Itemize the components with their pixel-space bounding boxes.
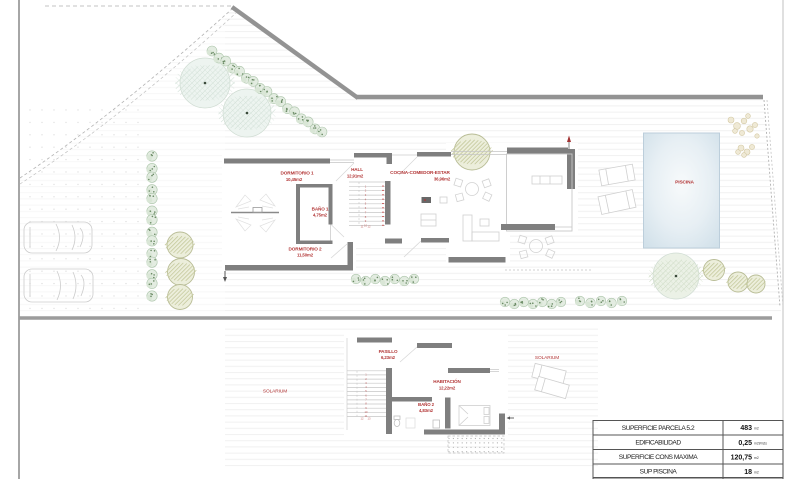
svg-text:m2t/m2s: m2t/m2s — [754, 442, 767, 446]
svg-text:11,50m2: 11,50m2 — [297, 253, 314, 258]
svg-text:m2: m2 — [754, 471, 759, 475]
svg-text:0,25: 0,25 — [738, 440, 752, 447]
svg-text:12: 12 — [368, 225, 371, 229]
svg-text:10,45m2: 10,45m2 — [286, 177, 303, 182]
svg-text:13: 13 — [368, 417, 371, 421]
svg-text:HALL: HALL — [351, 167, 363, 172]
svg-text:DORMITORIO 1: DORMITORIO 1 — [280, 171, 314, 176]
svg-text:HABITACIÓN: HABITACIÓN — [433, 377, 461, 384]
svg-text:SOLARIUM: SOLARIUM — [263, 389, 287, 395]
svg-text:12,91m2: 12,91m2 — [347, 174, 364, 179]
svg-text:PASILLO: PASILLO — [379, 349, 398, 354]
svg-text:COCINA-COMEDOR-ESTAR: COCINA-COMEDOR-ESTAR — [390, 170, 450, 175]
svg-text:SOLARIUM: SOLARIUM — [535, 355, 559, 361]
svg-text:10: 10 — [365, 410, 368, 414]
svg-text:12,22m2: 12,22m2 — [439, 386, 456, 391]
svg-text:BAÑO 1: BAÑO 1 — [312, 206, 329, 212]
svg-text:SUPERFICIE PARCELA 5.2: SUPERFICIE PARCELA 5.2 — [622, 425, 695, 432]
svg-text:BAÑO 2: BAÑO 2 — [418, 402, 435, 407]
svg-text:EDIFICABILIDAD: EDIFICABILIDAD — [635, 440, 681, 447]
svg-text:m2: m2 — [754, 427, 759, 431]
svg-text:PISCINA: PISCINA — [675, 180, 694, 186]
svg-text:36,96m2: 36,96m2 — [434, 177, 451, 182]
svg-text:120,75: 120,75 — [731, 455, 753, 462]
svg-text:m2: m2 — [754, 456, 759, 460]
svg-text:18: 18 — [744, 469, 752, 476]
svg-text:4,83m2: 4,83m2 — [419, 408, 434, 413]
svg-text:12: 12 — [361, 417, 364, 421]
svg-text:4,75m2: 4,75m2 — [313, 213, 328, 218]
svg-text:483: 483 — [740, 425, 752, 432]
svg-text:DORMITORIO 2: DORMITORIO 2 — [288, 247, 322, 252]
svg-text:SUPERFICIE CONS MAXIMA: SUPERFICIE CONS MAXIMA — [619, 454, 698, 461]
svg-text:6,23m2: 6,23m2 — [381, 355, 396, 360]
svg-text:11: 11 — [361, 225, 364, 229]
svg-text:SUP PISCINA: SUP PISCINA — [640, 469, 678, 476]
